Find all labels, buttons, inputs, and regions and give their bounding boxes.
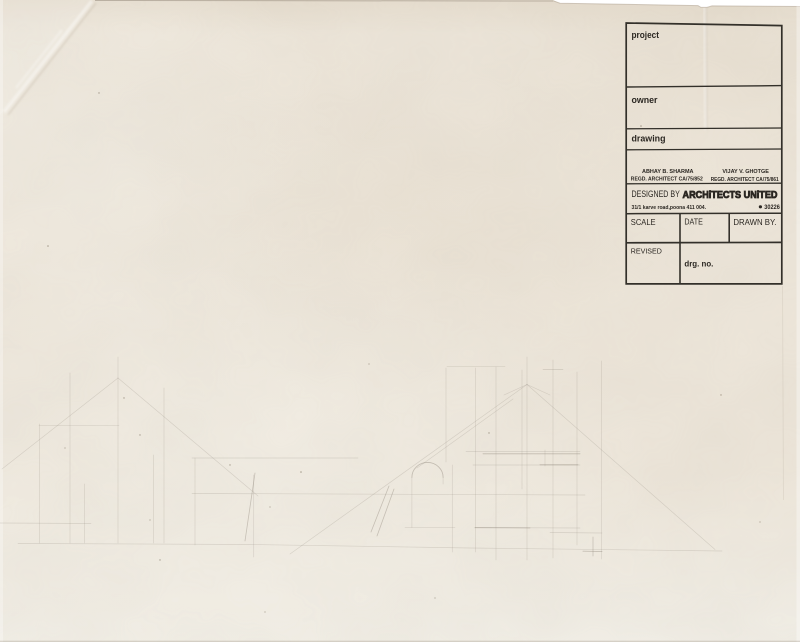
- svg-text:REVISED: REVISED: [631, 247, 662, 256]
- svg-text:30226: 30226: [764, 204, 780, 211]
- svg-text:drg. no.: drg. no.: [684, 258, 713, 268]
- svg-text:SCALE: SCALE: [631, 218, 656, 227]
- svg-text:REGD. ARCHITECT CA/75/861: REGD. ARCHITECT CA/75/861: [711, 177, 780, 183]
- svg-text:project: project: [632, 30, 660, 40]
- svg-text:drawing: drawing: [632, 133, 666, 143]
- svg-text:DRAWN BY.: DRAWN BY.: [733, 218, 776, 227]
- svg-text:DESIGNED BY: DESIGNED BY: [632, 189, 680, 199]
- svg-text:31/1 karve road,poona 411 004.: 31/1 karve road,poona 411 004.: [632, 205, 707, 211]
- svg-text:ARCHiTECTS UNiTED: ARCHiTECTS UNiTED: [683, 189, 778, 201]
- svg-text:DATE: DATE: [684, 218, 703, 227]
- svg-text:ABHAY B. SHARMA: ABHAY B. SHARMA: [642, 169, 694, 175]
- svg-text:owner: owner: [632, 95, 658, 105]
- svg-text:VIJAY V. GHOTGE: VIJAY V. GHOTGE: [722, 169, 769, 175]
- svg-text:REGD. ARCHITECT CA/75/852: REGD. ARCHITECT CA/75/852: [631, 177, 703, 183]
